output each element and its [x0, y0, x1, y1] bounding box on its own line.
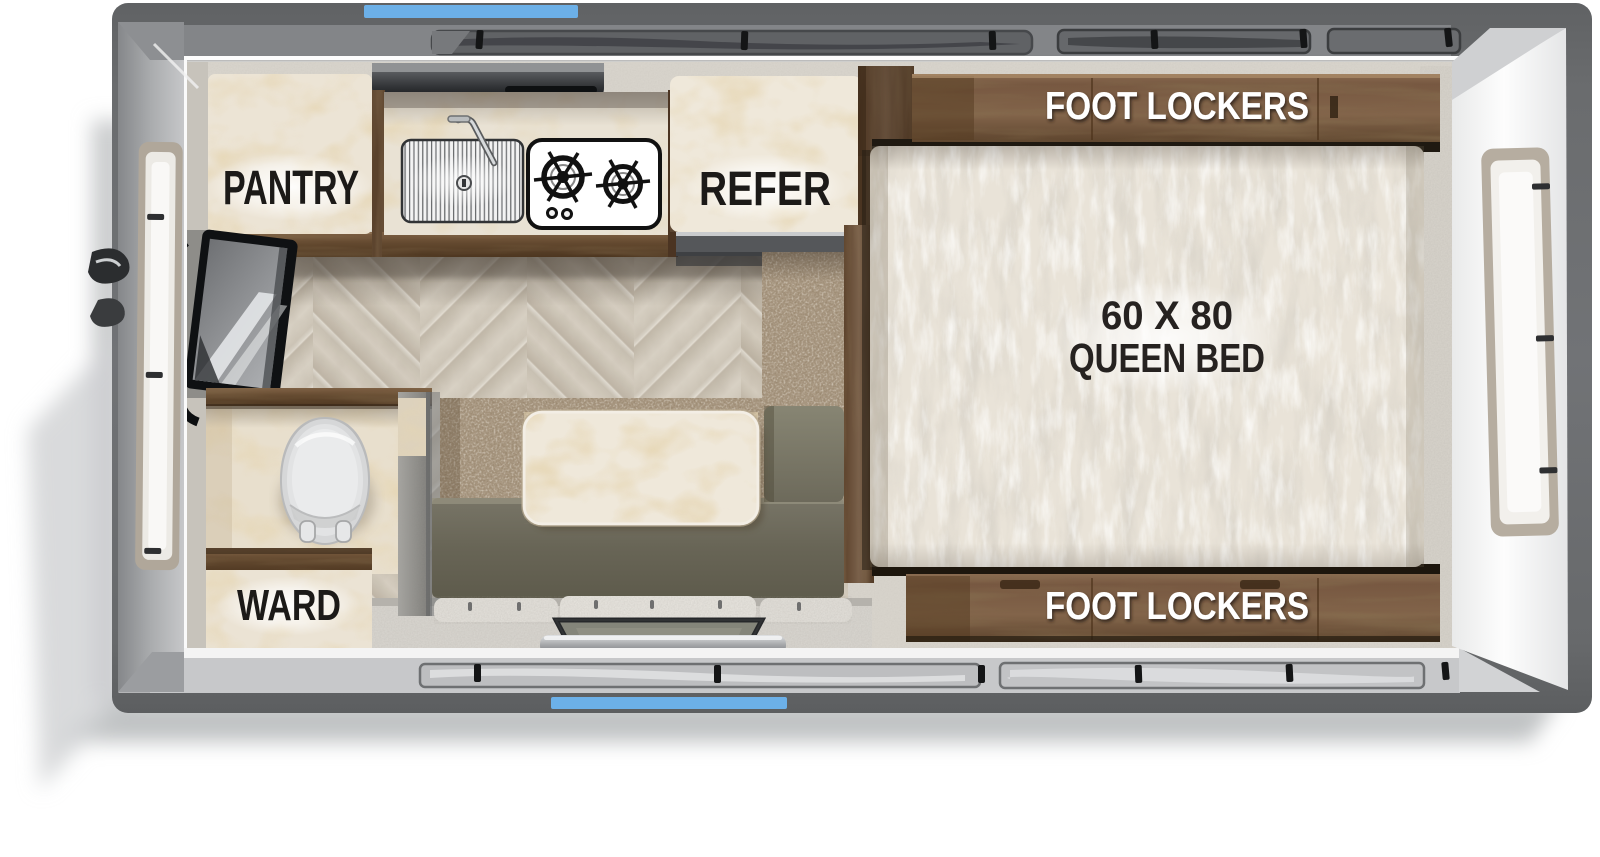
- svg-text:60 X 80: 60 X 80: [1101, 294, 1233, 338]
- svg-text:QUEEN BED: QUEEN BED: [1069, 335, 1265, 381]
- svg-text:REFER: REFER: [699, 163, 831, 216]
- svg-text:FOOT LOCKERS: FOOT LOCKERS: [1045, 585, 1309, 628]
- svg-text:WARD: WARD: [237, 581, 341, 630]
- svg-text:PANTRY: PANTRY: [223, 162, 359, 215]
- svg-text:FOOT LOCKERS: FOOT LOCKERS: [1045, 85, 1309, 128]
